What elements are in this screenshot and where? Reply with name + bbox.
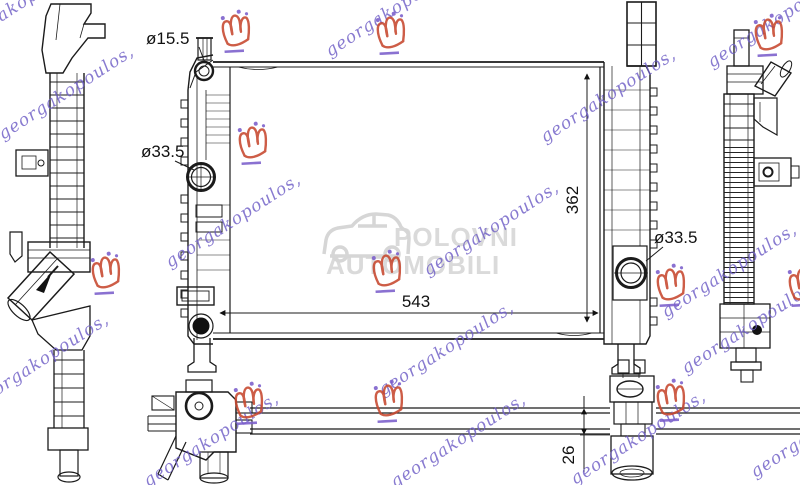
technical-drawing-canvas: POLOVNI AUTOMOBILI (0, 0, 800, 485)
mounting-bolt (193, 318, 210, 335)
dimension-label-outlet: ø33.5 (654, 228, 697, 247)
center-watermark-line2: AUTOMOBILI (326, 250, 500, 280)
dimension-label-cap: ø15.5 (146, 29, 189, 48)
dimension-label-height: 362 (563, 186, 582, 214)
dimension-label-width: 543 (402, 292, 430, 311)
dimension-label-thickness: 26 (559, 446, 578, 465)
dimension-label-inlet: ø33.5 (141, 142, 184, 161)
inlet-port (186, 162, 216, 192)
